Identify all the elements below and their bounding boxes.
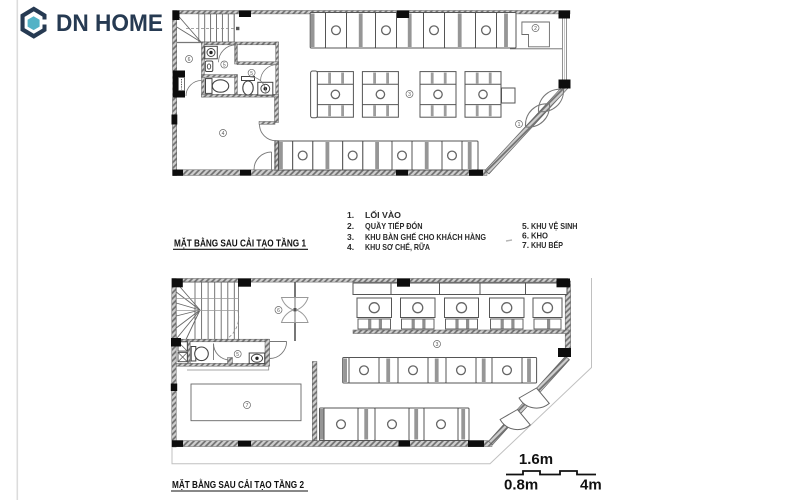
svg-text:7.: 7. xyxy=(522,240,529,250)
svg-text:3: 3 xyxy=(436,342,439,348)
svg-text:4.: 4. xyxy=(347,242,354,252)
svg-text:MẶT BẰNG SAU CẢI TẠO TẦNG 1: MẶT BẰNG SAU CẢI TẠO TẦNG 1 xyxy=(174,237,306,250)
svg-text:3: 3 xyxy=(408,92,411,98)
svg-text:2: 2 xyxy=(534,26,537,32)
svg-text:4: 4 xyxy=(222,131,225,137)
svg-text:KHU SƠ CHẾ, RỮA: KHU SƠ CHẾ, RỮA xyxy=(365,242,430,252)
svg-text:KHU BẾP: KHU BẾP xyxy=(531,240,563,250)
svg-text:2.: 2. xyxy=(347,221,354,231)
svg-text:DN HOME: DN HOME xyxy=(56,10,163,37)
svg-text:MẶT BẰNG SAU CẢI TẠO TẦNG 2: MẶT BẰNG SAU CẢI TẠO TẦNG 2 xyxy=(172,478,304,491)
svg-text:KHU BÀN GHẾ CHO KHÁCH HÀNG: KHU BÀN GHẾ CHO KHÁCH HÀNG xyxy=(365,232,486,242)
svg-text:1: 1 xyxy=(518,122,521,128)
svg-text:7: 7 xyxy=(246,403,249,409)
svg-text:6: 6 xyxy=(277,308,280,314)
svg-text:LỐI VÀO: LỐI VÀO xyxy=(365,209,401,220)
svg-text:4m: 4m xyxy=(580,477,602,494)
svg-text:6.: 6. xyxy=(522,231,529,241)
svg-text:KHU VỆ SINH: KHU VỆ SINH xyxy=(531,220,578,231)
svg-text:1.: 1. xyxy=(347,210,354,220)
svg-text:1.6m: 1.6m xyxy=(519,451,553,468)
svg-text:6: 6 xyxy=(188,57,191,63)
svg-text:5: 5 xyxy=(250,71,253,77)
svg-text:0.8m: 0.8m xyxy=(504,477,538,494)
svg-text:3.: 3. xyxy=(347,232,354,242)
svg-text:5: 5 xyxy=(223,63,226,69)
svg-text:QUẦY TIẾP ĐÓN: QUẦY TIẾP ĐÓN xyxy=(365,220,423,231)
svg-text:5.: 5. xyxy=(522,221,529,231)
svg-text:5: 5 xyxy=(236,352,239,358)
svg-text:KHO: KHO xyxy=(531,231,548,241)
